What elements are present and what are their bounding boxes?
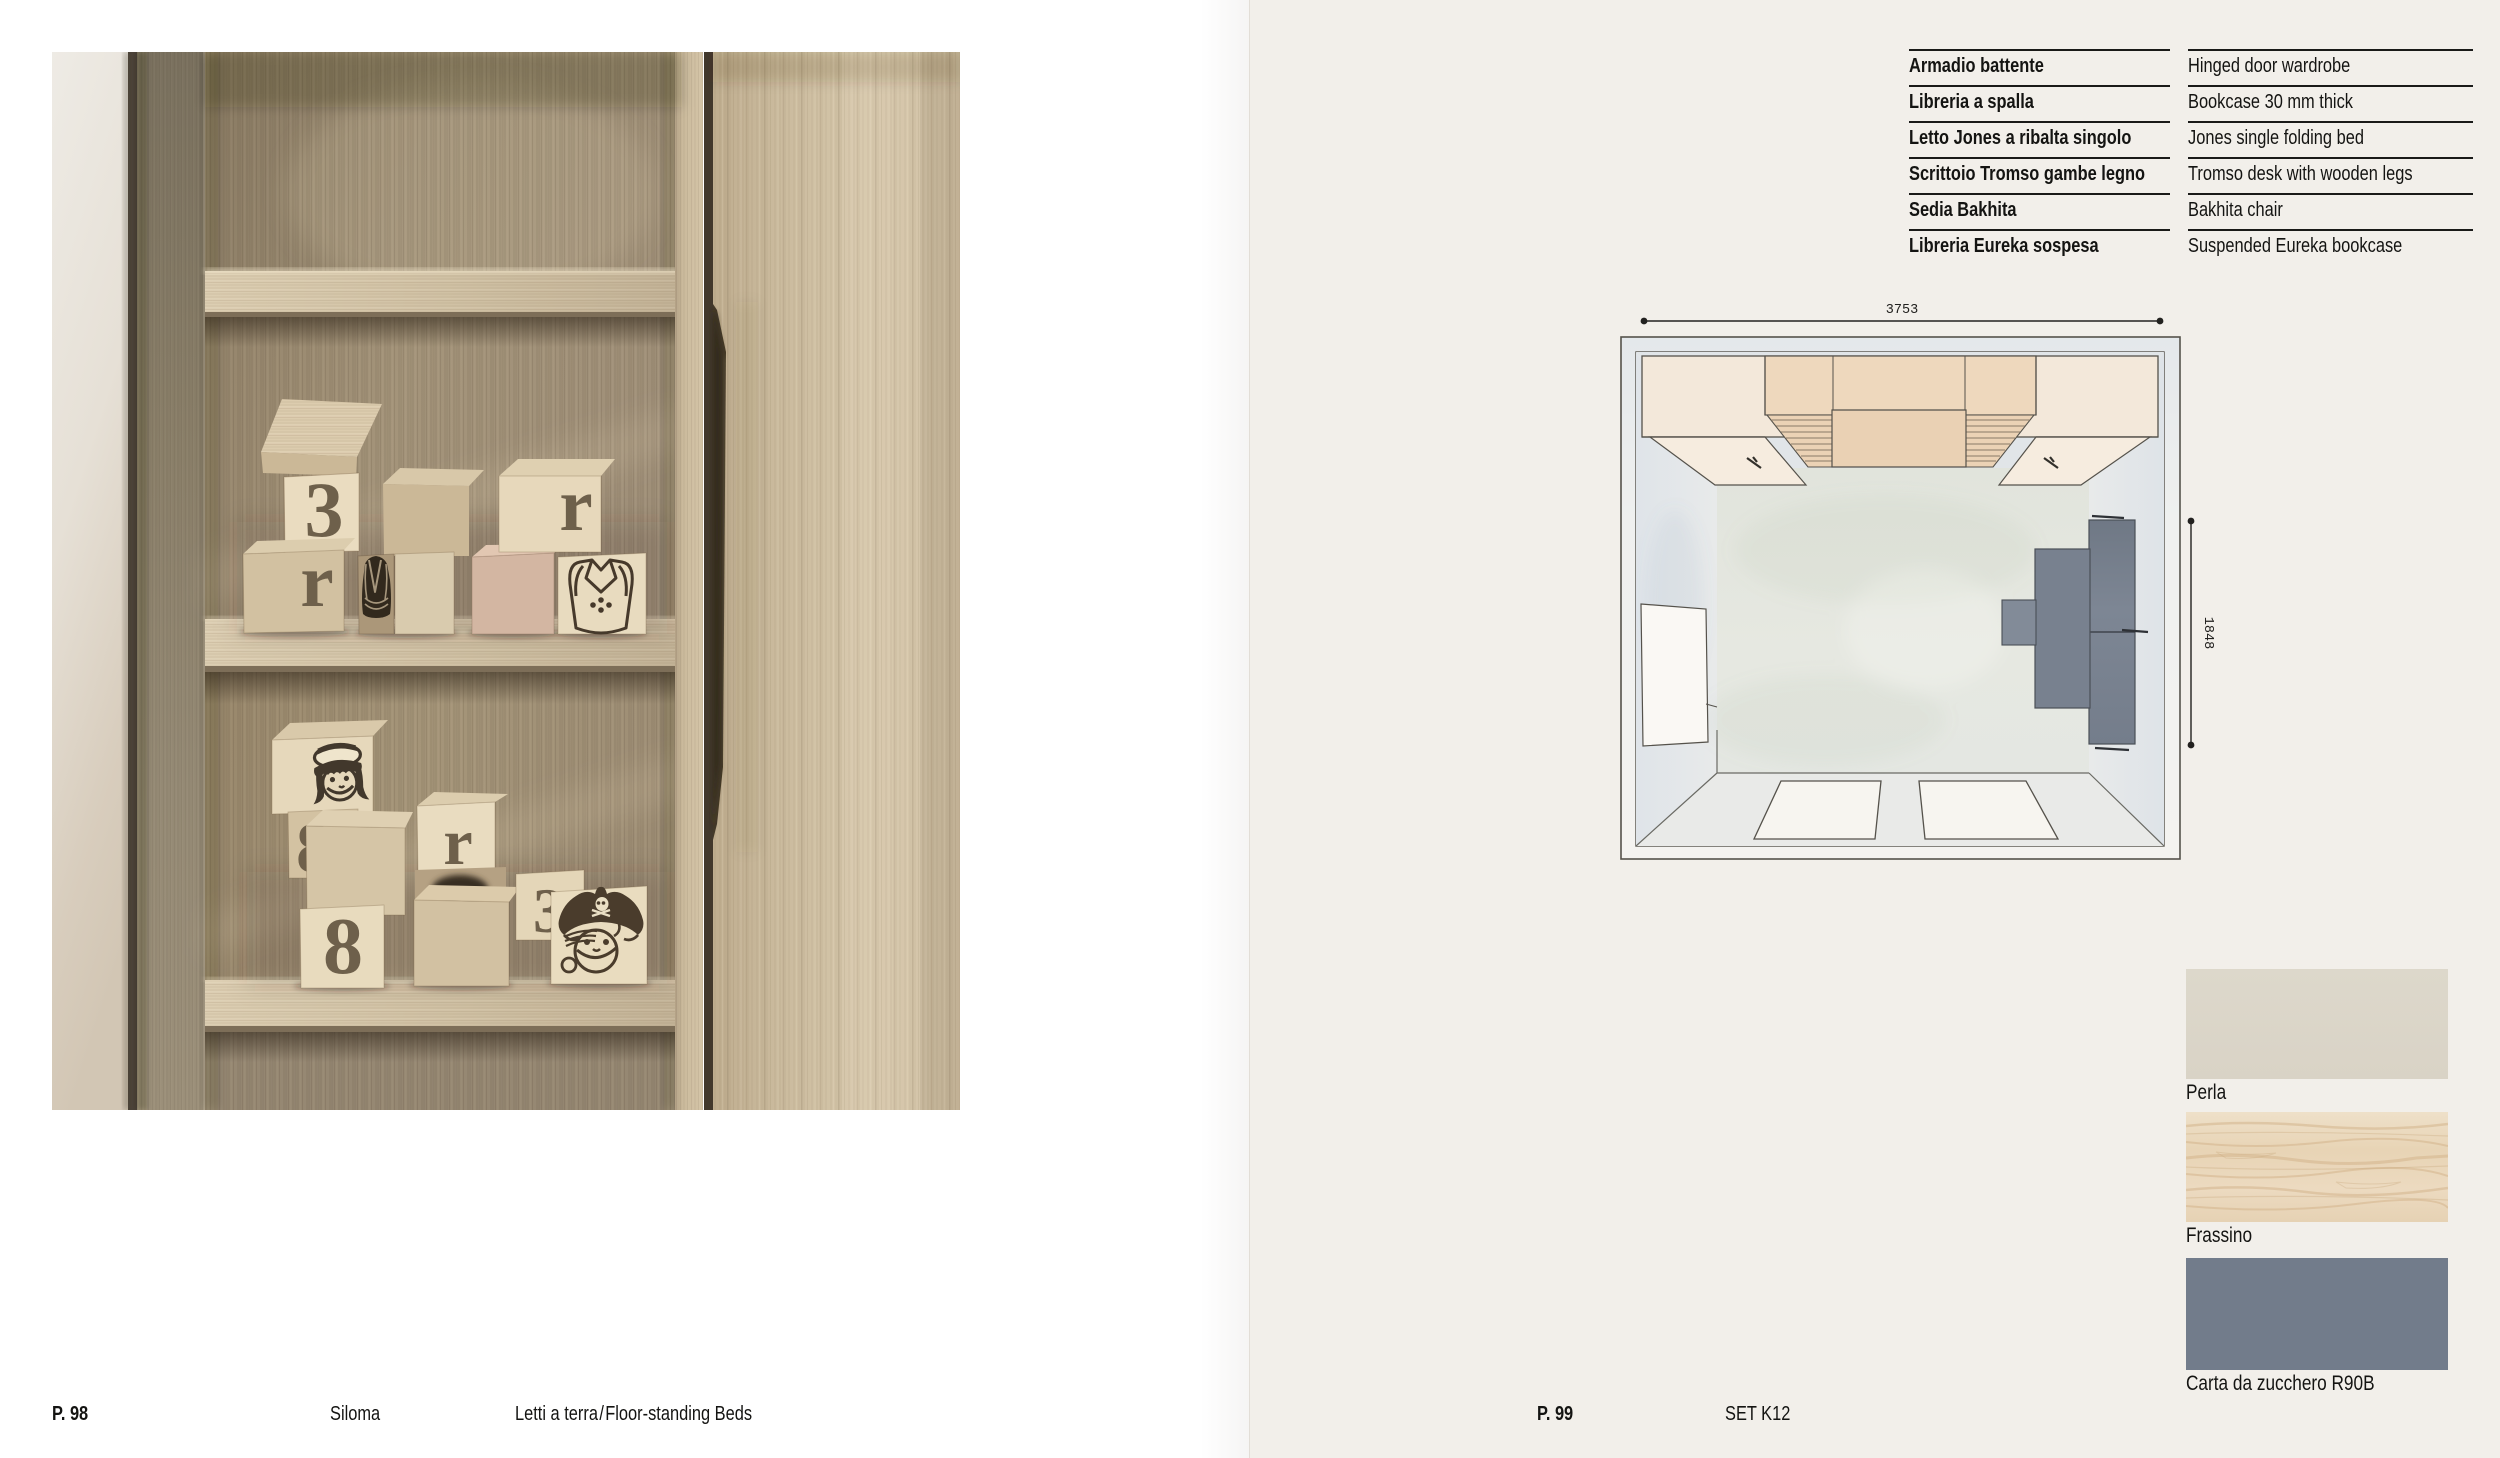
svg-text:3753: 3753	[1886, 303, 1918, 318]
svg-text:1848: 1848	[2200, 617, 2215, 649]
svg-text:r: r	[559, 464, 592, 547]
svg-text:r: r	[443, 806, 472, 879]
svg-text:8: 8	[323, 903, 363, 991]
svg-text:r: r	[300, 540, 333, 623]
